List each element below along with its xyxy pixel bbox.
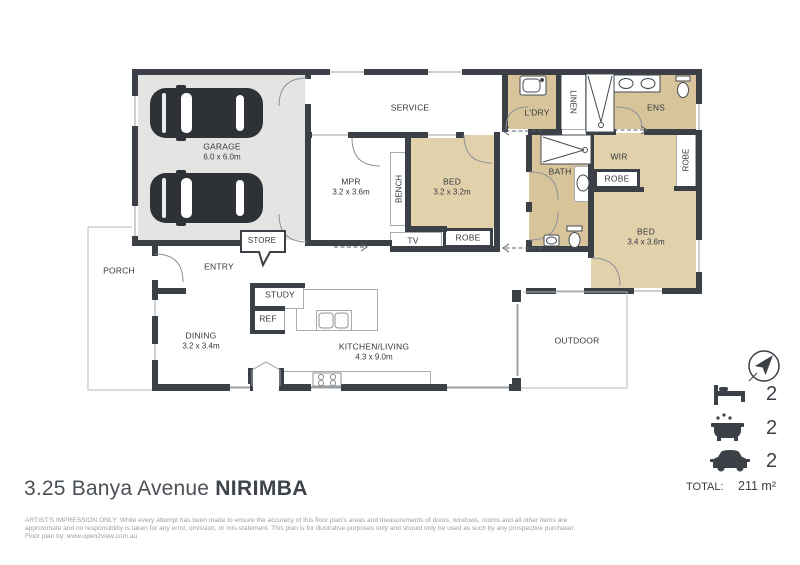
- wall-segment: [252, 306, 285, 311]
- bath-icon: [711, 413, 744, 441]
- label-robe-bed1: ROBE: [456, 233, 481, 244]
- window: [230, 384, 250, 391]
- window: [556, 288, 584, 294]
- wall-segment: [526, 202, 532, 212]
- room-label-entry: ENTRY: [204, 262, 234, 273]
- label-bench: BENCH: [395, 175, 404, 203]
- window: [132, 96, 138, 126]
- window: [428, 69, 462, 75]
- total-label: TOTAL:: [686, 481, 724, 493]
- window: [634, 288, 662, 294]
- sliding-door: [514, 304, 521, 376]
- label-store: STORE: [248, 236, 276, 246]
- wall-segment: [556, 69, 561, 133]
- label-ref: REF: [259, 314, 277, 325]
- wall-segment: [305, 104, 311, 246]
- wall-segment: [405, 226, 447, 232]
- wall-segment: [509, 384, 521, 391]
- bed-icon: [714, 385, 745, 405]
- wall-segment: [305, 69, 311, 79]
- total-value: 211 m²: [738, 479, 776, 493]
- wall-segment: [283, 384, 311, 391]
- disclaimer-line: approximate and no responsibility is tak…: [25, 525, 625, 533]
- window: [152, 344, 158, 360]
- room-label-linen: LINEN: [569, 90, 578, 114]
- wall-segment: [250, 283, 305, 288]
- wall-segment: [152, 384, 232, 391]
- wall-segment: [494, 132, 500, 248]
- address-suburb: NIRIMBA: [215, 477, 308, 500]
- room-label-garage: GARAGE6.0 x 6.0m: [203, 142, 241, 163]
- wall-segment: [152, 240, 158, 256]
- wall-segment: [152, 280, 158, 290]
- room-label-mpr: MPR3.2 x 3.6m: [332, 177, 369, 198]
- disclaimer-text: ARTIST'S IMPRESSION ONLY: While every at…: [25, 517, 625, 541]
- window: [696, 240, 702, 272]
- ens-floor: [586, 75, 696, 129]
- window: [312, 132, 348, 138]
- wall-segment: [405, 132, 411, 232]
- room-label-bed2: BED3.4 x 3.6m: [627, 227, 664, 248]
- window: [428, 132, 456, 138]
- room-label-ldry: L'DRY: [524, 108, 549, 119]
- bay-window: [252, 362, 280, 386]
- room-label-kitchen-living: KITCHEN/LIVING4.3 x 9.0m: [339, 342, 409, 363]
- wall-segment: [341, 384, 447, 391]
- label-tv: TV: [407, 236, 418, 247]
- window: [311, 384, 341, 391]
- wall-segment: [644, 129, 702, 135]
- floorplan-credit: Floor plan by: www.open2view.com.au: [25, 533, 625, 541]
- window: [447, 384, 509, 391]
- room-label-bath: BATH: [549, 167, 572, 178]
- kitchen-sink: [316, 310, 352, 331]
- room-label-porch: PORCH: [103, 266, 135, 277]
- bedroom-count: 2: [766, 383, 777, 406]
- page-title: 3.25 Banya Avenue NIRIMBA: [24, 477, 308, 501]
- room-label-wir: WIR: [610, 152, 627, 163]
- wall-segment: [592, 187, 644, 192]
- floor-plan-page: GARAGE6.0 x 6.0m SERVICE MPR3.2 x 3.6m B…: [0, 0, 800, 565]
- ldry-floor: [505, 75, 562, 129]
- wall-segment: [311, 240, 392, 246]
- room-label-outdoor: OUTDOOR: [555, 336, 600, 347]
- wall-segment: [526, 246, 592, 252]
- wall-segment: [512, 290, 521, 302]
- room-label-service: SERVICE: [391, 103, 430, 114]
- compass-icon: [749, 351, 779, 381]
- label-robe-bed2: ROBE: [682, 149, 691, 172]
- window: [330, 69, 364, 75]
- window: [152, 300, 158, 316]
- wall-segment: [526, 288, 702, 294]
- wall-segment: [390, 246, 500, 252]
- room-label-bed1: BED3.2 x 3.2m: [433, 177, 470, 198]
- wall-segment: [250, 330, 285, 334]
- address-street: 3.25 Banya Avenue: [24, 477, 209, 500]
- wall-segment: [132, 69, 702, 75]
- label-robe-wir: ROBE: [605, 174, 630, 185]
- wall-segment: [132, 240, 242, 246]
- car-icon: [710, 450, 750, 472]
- wall-segment: [588, 135, 594, 258]
- room-label-ens: ENS: [647, 103, 665, 114]
- car-space-count: 2: [766, 450, 777, 473]
- disclaimer-line: ARTIST'S IMPRESSION ONLY: While every at…: [25, 517, 625, 525]
- wall-segment: [674, 186, 700, 191]
- label-study: STUDY: [265, 290, 295, 301]
- window: [696, 104, 702, 130]
- bathroom-count: 2: [766, 417, 777, 440]
- wall-segment: [526, 135, 532, 172]
- window: [132, 206, 138, 236]
- porch-outline: [88, 227, 152, 390]
- room-label-dining: DINING3.2 x 3.4m: [182, 331, 219, 352]
- wall-segment: [502, 75, 508, 132]
